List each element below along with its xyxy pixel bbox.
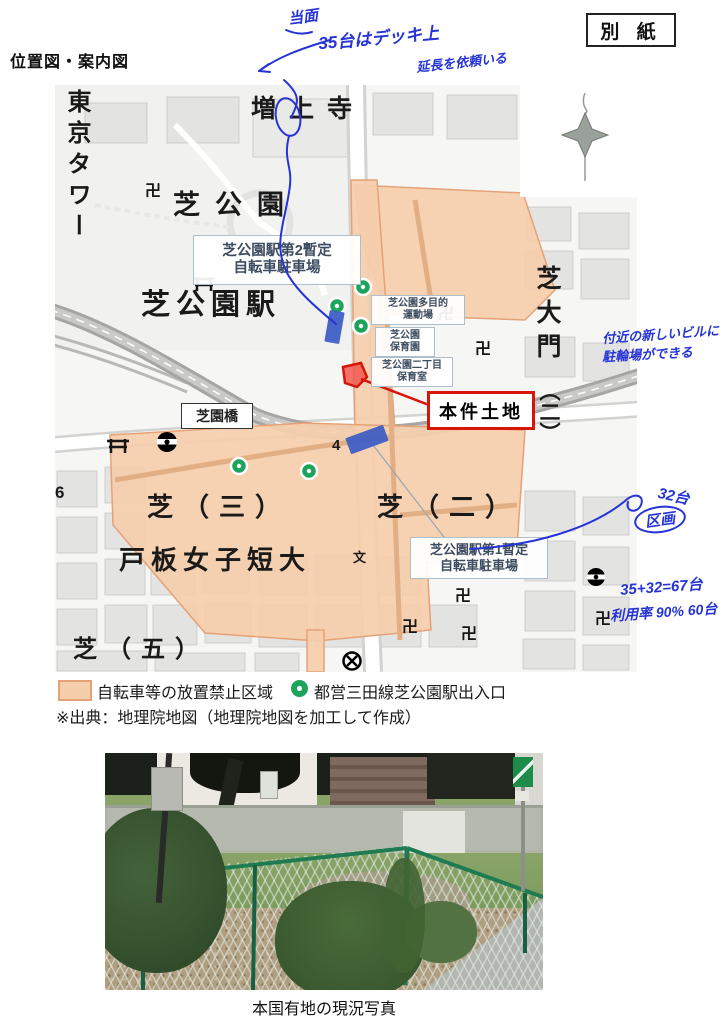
callout-line: 芝公園駅第1暫定 bbox=[411, 542, 547, 558]
callout-line: 芝公園 bbox=[376, 330, 434, 342]
handwritten-note-top-1: 当面 bbox=[287, 4, 320, 29]
handwritten-note-kukaku: 区画 bbox=[632, 503, 687, 537]
map-label-toita-college: 戸板女子短大 bbox=[119, 540, 311, 577]
callout-line: 自転車駐車場 bbox=[194, 260, 360, 277]
callout-bicycle-parking-2: 芝公園駅第2暫定 自転車駐車場 bbox=[193, 235, 361, 285]
temple-icon: 卍 bbox=[402, 613, 418, 637]
handwritten-note-calc: 35+32=67台 bbox=[619, 573, 703, 600]
callout-line: 運動場 bbox=[372, 310, 464, 322]
map-source-note: ※出典：地理院地図（地理院地図を加工して作成） bbox=[56, 704, 421, 728]
document-page: 別 紙 位置図・案内図 bbox=[0, 0, 725, 1024]
map-label-shibakoen-station: 芝公園駅 bbox=[141, 281, 281, 323]
map-label-block-4: 4 bbox=[332, 437, 340, 454]
callout-bicycle-parking-1: 芝公園駅第1暫定 自転車駐車場 bbox=[410, 537, 548, 579]
temple-icon: 卍 bbox=[145, 177, 161, 201]
photo-vine bbox=[383, 858, 425, 973]
legend-exit-label: 都営三田線芝公園駅出入口 bbox=[314, 679, 506, 703]
map-label-shiba-daimon: 芝大門 bbox=[529, 265, 565, 367]
photo-caption: 本国有地の現況写真 bbox=[105, 995, 543, 1019]
location-map: 東京タワー 増上寺 芝公園 芝公園駅 芝大門 （二） 芝（三） 芝（二） 戸板女… bbox=[55, 85, 637, 672]
temple-icon: 卍 bbox=[595, 605, 611, 629]
callout-line: 保育園 bbox=[376, 342, 434, 354]
callout-line: 自転車駐車場 bbox=[411, 558, 547, 574]
map-label-shiba-5: 芝（五） bbox=[73, 629, 209, 664]
map-label-shiba-3: 芝（三） bbox=[147, 487, 291, 524]
callout-line: 芝公園駅第2暫定 bbox=[194, 243, 360, 260]
zone-swatch bbox=[58, 680, 92, 701]
subject-site-label: 本件土地 bbox=[427, 391, 535, 430]
subway-station-icon bbox=[587, 568, 605, 586]
site-photo bbox=[105, 753, 543, 990]
legend-zone-label: 自転車等の放置禁止区域 bbox=[97, 679, 273, 703]
callout-playground: 芝公園多目的 運動場 bbox=[371, 295, 465, 325]
temple-icon: 卍 bbox=[475, 335, 491, 359]
map-label-zojoji: 増上寺 bbox=[251, 89, 365, 125]
map-label-shiba-park: 芝公園 bbox=[173, 183, 299, 222]
map-label-shiba-2: 芝（二） bbox=[377, 487, 521, 524]
temple-icon: 卍 bbox=[461, 620, 477, 644]
handwritten-note-top-2: 35台はデッキ上 bbox=[317, 19, 440, 54]
map-label-tokyo-tower: 東京タワー bbox=[59, 89, 94, 244]
temple-icon: 卍 bbox=[455, 582, 471, 606]
map-label-daimon-chome: （二） bbox=[533, 380, 563, 443]
callout-line: 保育室 bbox=[372, 372, 452, 384]
handwritten-note-right-2: 駐輪場ができる bbox=[602, 342, 694, 366]
attachment-stamp: 別 紙 bbox=[586, 13, 676, 47]
station-exit-icon bbox=[291, 680, 308, 697]
police-box-icon bbox=[344, 653, 361, 670]
map-label-block-6: 6 bbox=[55, 483, 64, 503]
school-icon: 文 bbox=[353, 547, 366, 566]
subway-station-icon bbox=[157, 432, 177, 452]
callout-line: 芝公園多目的 bbox=[372, 298, 464, 310]
callout-nursery-2: 芝公園二丁目 保育室 bbox=[371, 357, 453, 387]
photo-green-sign bbox=[513, 757, 533, 787]
callout-shibazono-bridge: 芝園橋 bbox=[181, 403, 253, 429]
photo-small-plate bbox=[515, 791, 529, 801]
page-title: 位置図・案内図 bbox=[10, 48, 129, 72]
callout-line: 芝公園二丁目 bbox=[372, 360, 452, 372]
callout-nursery: 芝公園 保育園 bbox=[375, 327, 435, 357]
photo-utility-box bbox=[151, 767, 183, 811]
handwritten-note-top-3: 延長を依頼いる bbox=[415, 47, 508, 75]
map-base-drawing bbox=[55, 85, 637, 672]
